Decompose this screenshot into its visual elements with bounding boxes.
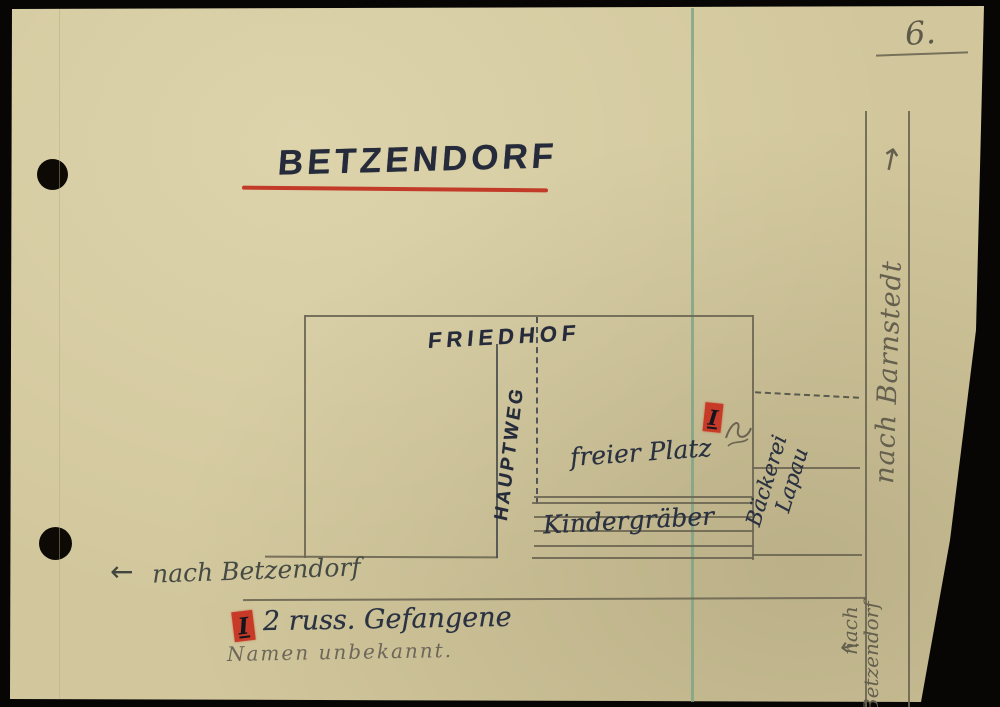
grave-marker-map: I (703, 402, 724, 433)
cemetery-top-line (305, 315, 753, 317)
grave-row-line (534, 545, 754, 547)
legend-entry: 2 russ. Gefangene (263, 602, 512, 637)
nach-betzendorf-right-label: nach Betzendorf (840, 543, 884, 707)
nach-betzendorf-right-line1: nach (840, 543, 861, 655)
legend-marker: I (231, 610, 255, 642)
legend-marker-numeral: I (237, 612, 251, 640)
grave-marker-numeral: I (707, 405, 719, 431)
nach-betzendorf-right-line2: Betzendorf (861, 543, 882, 707)
legend-note: Namen unbekannt. (227, 638, 453, 666)
scanned-map-page: 6. BETZENDORF FRIEDHOF HAUPTWEG freier P… (0, 0, 1000, 707)
grave-row-line (534, 496, 754, 498)
pencil-scribble (722, 406, 756, 452)
punch-hole-top (37, 159, 68, 190)
grave-row-line (532, 502, 754, 504)
page-number: 6. (904, 13, 937, 53)
map-title: BETZENDORF (276, 136, 558, 183)
paper-crease (59, 9, 60, 699)
grave-field-bottom-line (532, 557, 754, 559)
punch-hole-bottom (39, 527, 72, 560)
cemetery-left-line (304, 315, 306, 558)
arrow-left-icon: ← (110, 558, 133, 586)
